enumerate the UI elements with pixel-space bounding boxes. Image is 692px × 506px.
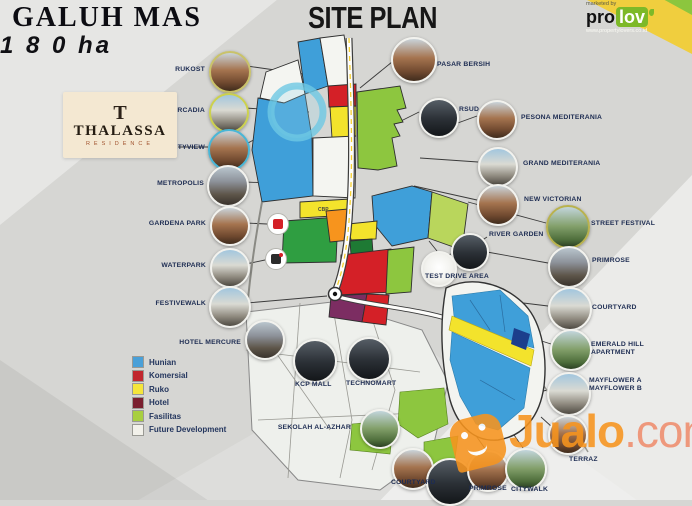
- primrose-east-label: PRIMROSE: [592, 257, 630, 265]
- rukost-label: RUKOST: [175, 66, 205, 74]
- rsud-label: RSUD: [459, 106, 479, 114]
- hotel-mercure-photo: [245, 320, 285, 360]
- legend-label: Fasilitas: [149, 412, 181, 421]
- legend-swatch: [132, 424, 144, 436]
- emerald-hill-label: EMERALD HILLAPARTMENT: [591, 341, 644, 356]
- legend-item-2: Ruko: [132, 383, 226, 395]
- prolov-brand-right: lov: [616, 7, 648, 27]
- citywalk-label: CITYWALK: [511, 486, 548, 494]
- test-drive-area-label: TEST DRIVE AREA: [425, 273, 489, 281]
- terraz-photo: [548, 415, 588, 455]
- festivewalk-photo: [209, 286, 251, 328]
- waterpark-label: WATERPARK: [161, 262, 206, 270]
- legend-label: Ruko: [149, 385, 169, 394]
- page-title: SITE PLAN: [308, 0, 437, 36]
- thalassa-name: THALASSA: [74, 123, 167, 139]
- project-title: GALUH MAS: [12, 2, 202, 34]
- legend-label: Hunian: [149, 358, 176, 367]
- street-festival-label: STREET FESTIVAL: [591, 220, 655, 228]
- river-garden-label: RIVER GARDEN: [489, 231, 544, 239]
- sekolah-al-azhar-label: SEKOLAH AL-AZHAR: [278, 424, 351, 432]
- legend-label: Future Development: [149, 425, 226, 434]
- prolov-brand-left: pro: [586, 7, 615, 28]
- courtyard-east-label: COURTYARD: [592, 304, 637, 312]
- legend-swatch: [132, 356, 144, 368]
- street-festival-photo: [546, 205, 590, 249]
- prolov-leaf-icon: [649, 9, 654, 16]
- legend: HunianKomersialRukoHotelFasilitasFuture …: [132, 356, 226, 437]
- technomart-label: TECHNOMART: [346, 380, 396, 388]
- legend-swatch: [132, 410, 144, 422]
- grand-mediterania-photo: [478, 147, 518, 187]
- gardena-park-photo: [210, 206, 250, 246]
- primrose-south-label: PRIMROSE: [469, 485, 507, 493]
- legend-item-4: Fasilitas: [132, 410, 226, 422]
- legend-label: Komersial: [149, 371, 188, 380]
- courtyard-south-label: COURTYARD: [391, 479, 436, 487]
- prolov-logo: marketed by pro lov www.propertylovers.c…: [586, 1, 690, 34]
- legend-item-1: Komersial: [132, 370, 226, 382]
- kcp-mall-label: KCP MALL: [295, 381, 332, 389]
- sekolah-al-azhar-photo: [360, 409, 400, 449]
- terraz-label: TERRAZ: [569, 456, 598, 464]
- kcp-mall-photo: [293, 339, 337, 383]
- road-junction: [329, 288, 342, 301]
- test-drive-area-photo: [421, 251, 457, 287]
- prolov-website: www.propertylovers.co.id: [586, 28, 690, 34]
- metropolis-label: METROPOLIS: [157, 180, 204, 188]
- mayflower-photo: [547, 372, 591, 416]
- technomart-photo: [347, 337, 391, 381]
- waterpark-photo: [210, 248, 250, 288]
- mayflower-label: MAYFLOWER AMAYFLOWER B: [589, 377, 642, 392]
- legend-swatch: [132, 397, 144, 409]
- pesona-mediterania-label: PESONA MEDITERANIA: [521, 114, 602, 122]
- gardena-park-label: GARDENA PARK: [149, 220, 206, 228]
- project-area: 1 8 0 ha: [0, 32, 112, 60]
- new-victorian-label: NEW VICTORIAN: [524, 196, 582, 204]
- thalassa-monogram-icon: T: [113, 103, 126, 123]
- legend-swatch: [132, 383, 144, 395]
- rsud-photo: [419, 98, 459, 138]
- legend-label: Hotel: [149, 398, 169, 407]
- emerald-hill-photo: [550, 329, 592, 371]
- pasar-bersih-label: PASAR BERSIH: [437, 61, 490, 69]
- new-victorian-photo: [477, 184, 519, 226]
- rukost-photo: [209, 51, 251, 93]
- thalassa-card: T THALASSA RESIDENCE: [63, 92, 177, 158]
- cbp-zone-label: CBP: [318, 207, 329, 213]
- thalassa-subtitle: RESIDENCE: [86, 141, 154, 147]
- logo-badge-red-icon: [268, 214, 289, 235]
- legend-swatch: [132, 370, 144, 382]
- pasar-bersih-photo: [391, 37, 437, 83]
- logo-badge-dark-icon: [266, 249, 287, 270]
- legend-item-3: Hotel: [132, 397, 226, 409]
- primrose-east-photo: [548, 246, 590, 288]
- hotel-mercure-label: HOTEL MERCURE: [179, 339, 241, 347]
- pesona-mediterania-photo: [477, 100, 517, 140]
- arcadia-label: ARCADIA: [172, 107, 205, 115]
- highlight-ring: [271, 86, 323, 138]
- festivewalk-label: FESTIVEWALK: [155, 300, 206, 308]
- metropolis-photo: [207, 165, 249, 207]
- grand-mediterania-label: GRAND MEDITERANIA: [523, 160, 600, 168]
- legend-item-5: Future Development: [132, 424, 226, 436]
- courtyard-east-photo: [548, 287, 592, 331]
- citywalk-photo: [505, 448, 547, 490]
- arcadia-photo: [209, 93, 249, 133]
- legend-item-0: Hunian: [132, 356, 226, 368]
